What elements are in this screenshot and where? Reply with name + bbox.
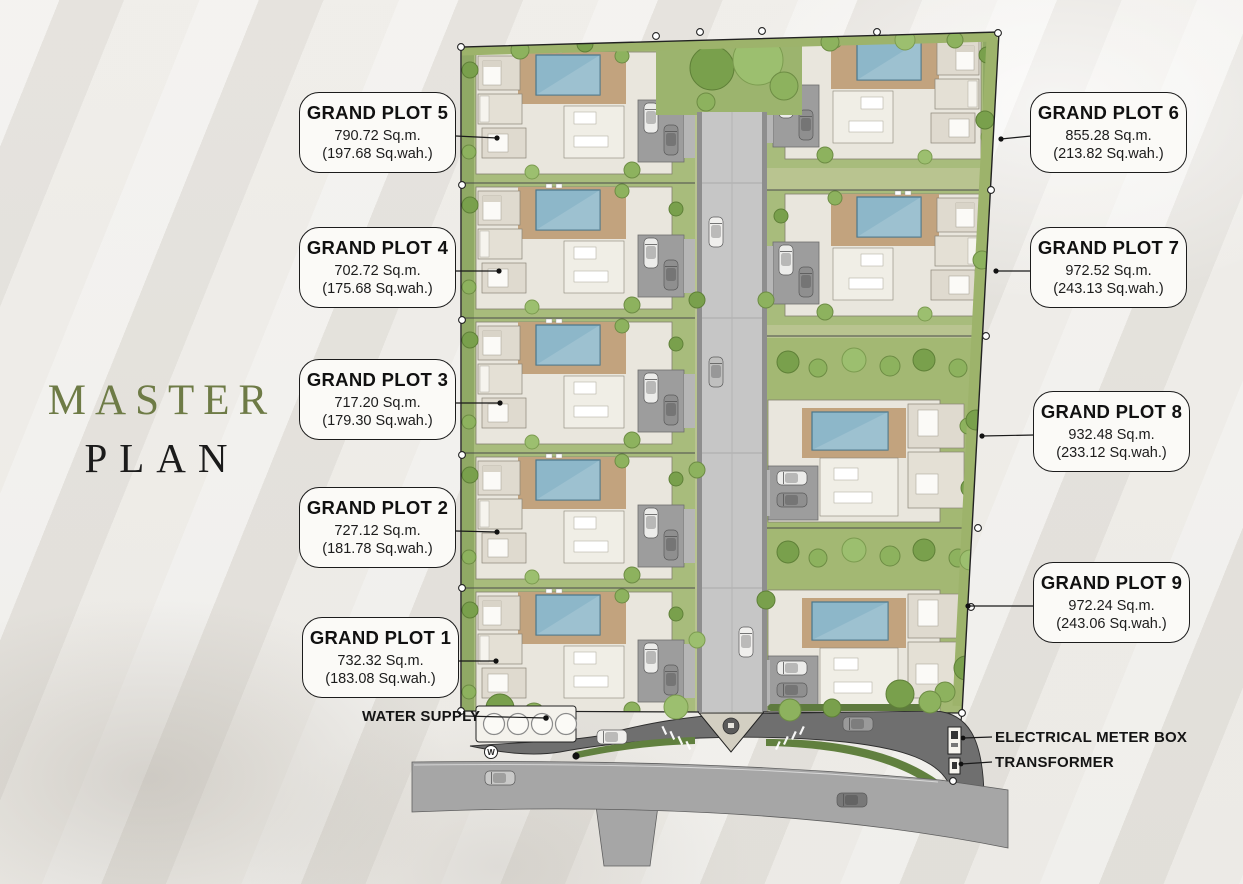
plot-name: GRAND PLOT 9 [1038,572,1185,594]
plot-area-sqm: 727.12 Sq.m. [304,523,451,539]
villa-plot-3 [462,318,695,453]
title-line-2: PLAN [46,434,278,482]
plot-name: GRAND PLOT 4 [304,237,451,259]
plot-label-3: GRAND PLOT 3 717.20 Sq.m. (179.30 Sq.wah… [299,359,456,440]
central-road [689,112,775,754]
plot-name: GRAND PLOT 5 [304,102,451,124]
plot-area-sqwah: (233.12 Sq.wah.) [1038,445,1185,461]
plot-name: GRAND PLOT 8 [1038,401,1185,423]
plot-area-sqwah: (179.30 Sq.wah.) [304,413,451,429]
plot-label-9: GRAND PLOT 9 972.24 Sq.m. (243.06 Sq.wah… [1033,562,1190,643]
electrical-meter-box-label: ELECTRICAL METER BOX [995,729,1187,746]
electrical-meter-box-marker [948,727,961,754]
plot-label-6: GRAND PLOT 6 855.28 Sq.m. (213.82 Sq.wah… [1030,92,1187,173]
site-interior [455,28,1010,754]
villa-plot-2 [462,453,695,588]
title-line-1: MASTER [46,376,278,425]
plot-area-sqwah: (197.68 Sq.wah.) [304,146,451,162]
villa-plot-8 [762,338,979,530]
plot-label-8: GRAND PLOT 8 932.48 Sq.m. (233.12 Sq.wah… [1033,391,1190,472]
car [837,793,867,807]
plot-area-sqm: 717.20 Sq.m. [304,395,451,411]
plot-label-2: GRAND PLOT 2 727.12 Sq.m. (181.78 Sq.wah… [299,487,456,568]
plot-label-5: GRAND PLOT 5 790.72 Sq.m. (197.68 Sq.wah… [299,92,456,173]
car [597,730,627,744]
plot-label-4: GRAND PLOT 4 702.72 Sq.m. (175.68 Sq.wah… [299,227,456,308]
master-plan-page: W [0,0,1243,884]
plot-area-sqwah: (175.68 Sq.wah.) [304,281,451,297]
plot-area-sqwah: (243.13 Sq.wah.) [1035,281,1182,297]
plot-area-sqwah: (181.78 Sq.wah.) [304,541,451,557]
plot-label-1: GRAND PLOT 1 732.32 Sq.m. (183.08 Sq.wah… [302,617,459,698]
car [843,717,873,731]
water-symbol: W [487,748,495,757]
page-title: MASTER PLAN [46,376,278,482]
plot-name: GRAND PLOT 6 [1035,102,1182,124]
plot-area-sqwah: (183.08 Sq.wah.) [307,671,454,687]
car [709,217,723,247]
plot-name: GRAND PLOT 7 [1035,237,1182,259]
plot-area-sqwah: (243.06 Sq.wah.) [1038,616,1185,632]
plot-name: GRAND PLOT 1 [307,627,454,649]
plot-area-sqwah: (213.82 Sq.wah.) [1035,146,1182,162]
villa-plot-4 [462,183,695,318]
plot-name: GRAND PLOT 3 [304,369,451,391]
villa-plot-7 [762,190,995,325]
plot-area-sqm: 855.28 Sq.m. [1035,128,1182,144]
plot-area-sqm: 932.48 Sq.m. [1038,427,1185,443]
car [709,357,723,387]
plot-label-7: GRAND PLOT 7 972.52 Sq.m. (243.13 Sq.wah… [1030,227,1187,308]
plot-area-sqm: 790.72 Sq.m. [304,128,451,144]
plot-area-sqm: 972.52 Sq.m. [1035,263,1182,279]
plot-area-sqm: 732.32 Sq.m. [307,653,454,669]
transformer-marker [949,758,960,774]
plot-area-sqm: 702.72 Sq.m. [304,263,451,279]
car [739,627,753,657]
car [485,771,515,785]
transformer-label: TRANSFORMER [995,754,1114,771]
plot-name: GRAND PLOT 2 [304,497,451,519]
water-supply-label: WATER SUPPLY [362,708,480,725]
plot-area-sqm: 972.24 Sq.m. [1038,598,1185,614]
